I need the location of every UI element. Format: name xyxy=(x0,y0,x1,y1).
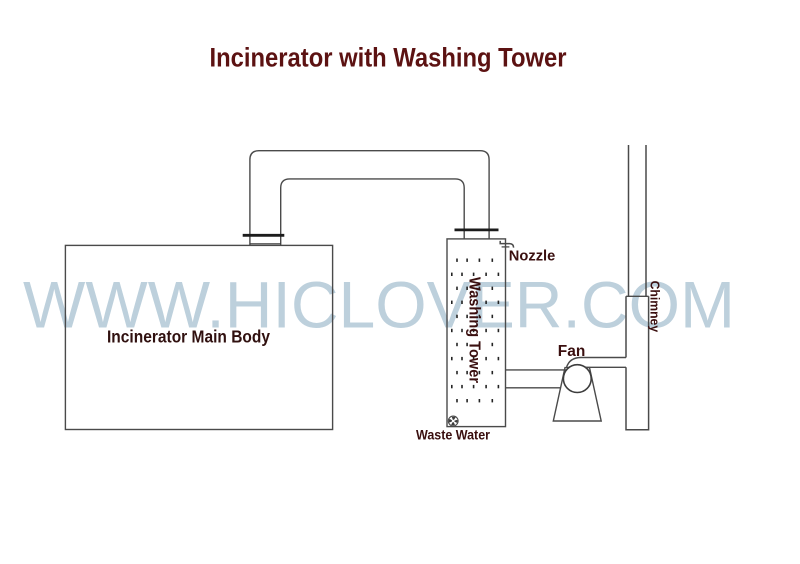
svg-text:Incinerator with Washing Tower: Incinerator with Washing Tower xyxy=(210,43,567,73)
svg-text:Chimney: Chimney xyxy=(648,281,663,333)
svg-text:Nozzle: Nozzle xyxy=(509,248,556,265)
svg-text:Fan: Fan xyxy=(558,343,586,360)
svg-text:Incinerator Main Body: Incinerator Main Body xyxy=(107,327,270,347)
svg-text:Waste Water: Waste Water xyxy=(416,427,490,443)
svg-text:Washing Tower: Washing Tower xyxy=(466,277,483,383)
